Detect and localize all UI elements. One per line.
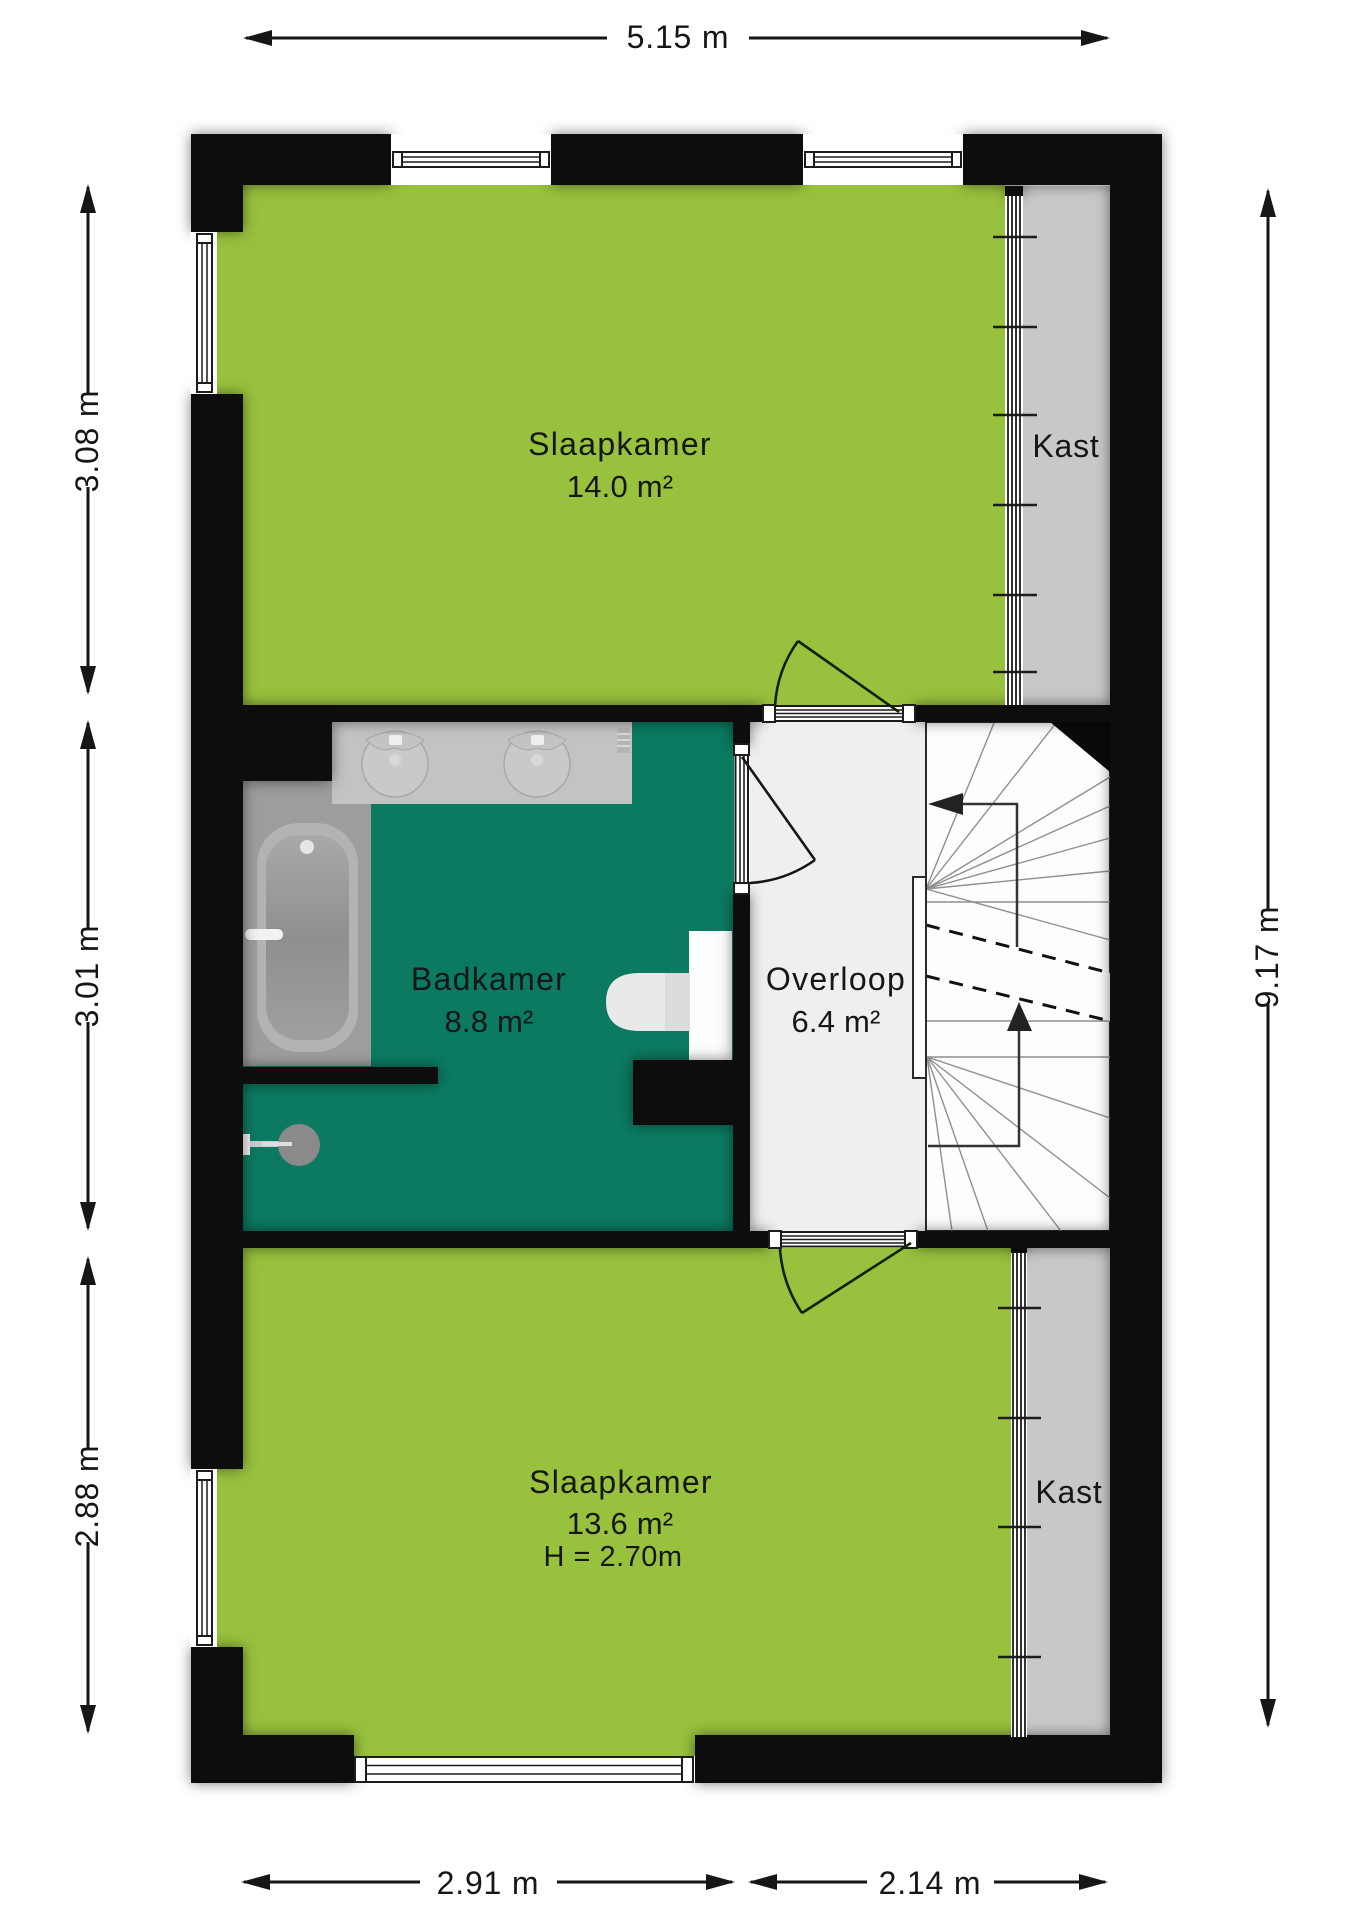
- svg-text:3.08 m: 3.08 m: [69, 390, 105, 493]
- svg-text:2.88 m: 2.88 m: [69, 1445, 105, 1548]
- svg-text:8.8 m²: 8.8 m²: [444, 1004, 533, 1039]
- svg-text:2.91 m: 2.91 m: [437, 1865, 540, 1901]
- svg-text:14.0 m²: 14.0 m²: [567, 469, 674, 504]
- svg-text:2.14 m: 2.14 m: [879, 1865, 982, 1901]
- svg-text:5.15 m: 5.15 m: [627, 19, 730, 55]
- svg-text:9.17 m: 9.17 m: [1249, 906, 1285, 1009]
- svg-text:13.6 m²: 13.6 m²: [567, 1506, 674, 1541]
- svg-text:Slaapkamer: Slaapkamer: [529, 1464, 713, 1500]
- svg-text:Badkamer: Badkamer: [411, 961, 567, 997]
- svg-text:Overloop: Overloop: [766, 961, 906, 997]
- svg-text:Kast: Kast: [1032, 428, 1099, 464]
- svg-text:3.01 m: 3.01 m: [69, 925, 105, 1028]
- svg-text:H = 2.70m: H = 2.70m: [543, 1541, 682, 1573]
- svg-text:Kast: Kast: [1035, 1474, 1102, 1510]
- svg-text:Slaapkamer: Slaapkamer: [528, 426, 712, 462]
- svg-text:6.4 m²: 6.4 m²: [791, 1004, 880, 1039]
